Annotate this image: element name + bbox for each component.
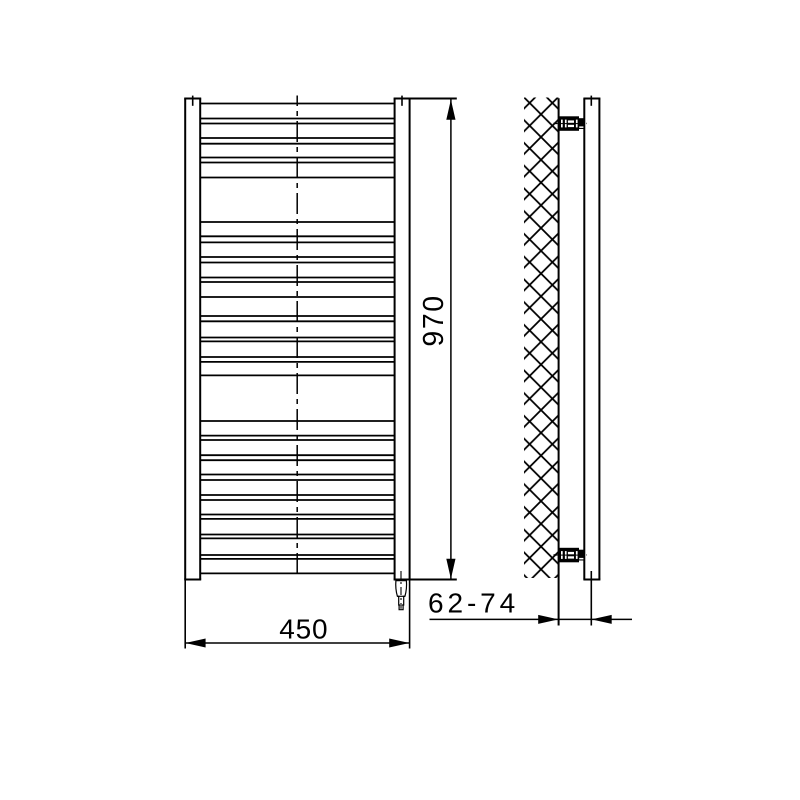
svg-text:450: 450 (279, 614, 328, 645)
svg-text:62-74: 62-74 (428, 587, 519, 618)
svg-text:970: 970 (418, 294, 450, 346)
